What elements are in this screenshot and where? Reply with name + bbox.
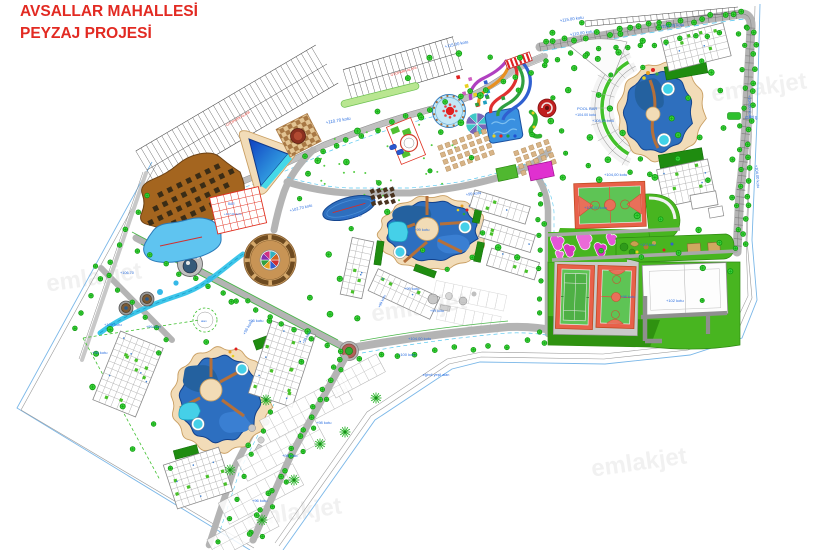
svg-text:+104.00 kotu: +104.00 kotu: [747, 95, 753, 118]
svg-text:AVSALLAR MAHALLESİ: AVSALLAR MAHALLESİ: [20, 3, 198, 20]
svg-text:+102 kotu: +102 kotu: [666, 298, 684, 303]
svg-text:+96 kotu: +96 kotu: [146, 325, 161, 329]
svg-text:+99 kotu: +99 kotu: [404, 286, 419, 291]
svg-text:alan: alan: [201, 319, 207, 323]
svg-text:POOL BAR: POOL BAR: [577, 106, 597, 111]
svg-text:+107.00 kotu: +107.00 kotu: [224, 212, 242, 216]
svg-text:+104.00 kotu: +104.00 kotu: [575, 113, 596, 117]
svg-text:+106.70: +106.70: [120, 271, 134, 275]
svg-text:+108.80 kotu: +108.80 kotu: [592, 119, 614, 123]
svg-text:+99 kotu: +99 kotu: [414, 227, 429, 232]
svg-text:+112 kotu: +112 kotu: [640, 243, 656, 247]
svg-text:+96 kotu: +96 kotu: [252, 498, 267, 503]
svg-text:+100 kotu: +100 kotu: [398, 352, 416, 357]
svg-text:+96 kotu: +96 kotu: [92, 350, 107, 355]
svg-text:PEYZAJ PROJESİ: PEYZAJ PROJESİ: [20, 25, 152, 42]
svg-text:+104,00 kotu: +104,00 kotu: [604, 172, 627, 177]
svg-text:+99 kotu: +99 kotu: [430, 309, 444, 313]
svg-text:+98 kotu: +98 kotu: [316, 420, 331, 425]
svg-text:+104.00 kotu: +104.00 kotu: [584, 205, 607, 210]
svg-text:+100 kotu: +100 kotu: [104, 322, 122, 327]
svg-text:eğimli yeşil alan: eğimli yeşil alan: [423, 373, 450, 377]
svg-text:+96 kotu: +96 kotu: [248, 318, 263, 323]
svg-text:BAR: BAR: [228, 202, 235, 206]
svg-text:+104.00 kotu: +104.00 kotu: [408, 336, 431, 341]
svg-text:+98 kotu: +98 kotu: [620, 294, 635, 299]
svg-text:+98 kotu: +98 kotu: [282, 453, 297, 458]
